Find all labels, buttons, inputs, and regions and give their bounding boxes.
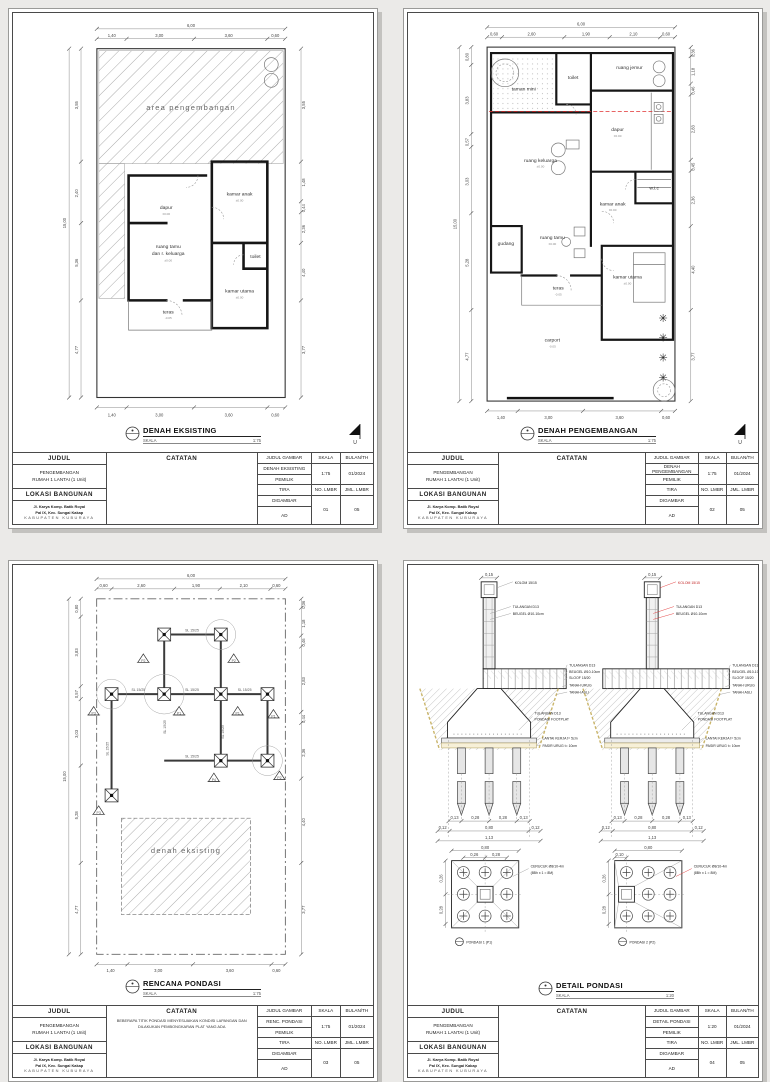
svg-text:1,13: 1,13 bbox=[485, 835, 494, 840]
svg-text:3,60: 3,60 bbox=[226, 968, 235, 973]
svg-text:3,77: 3,77 bbox=[691, 352, 696, 361]
no-lmbr-header: NO. LMBR bbox=[699, 485, 727, 496]
room-label: taman mini bbox=[512, 87, 536, 93]
skala-value: 1:20 bbox=[699, 1017, 727, 1038]
room-label: dapur bbox=[160, 205, 173, 211]
titleblock-info: JUDUL GAMBAR SKALA BULAN/TH DENAH EKSIST… bbox=[258, 453, 373, 524]
svg-text:0,28: 0,28 bbox=[602, 905, 607, 914]
svg-text:0,12: 0,12 bbox=[532, 825, 541, 830]
pemilik-header: PEMILIK bbox=[258, 475, 312, 485]
room-label: dan r. keluarga bbox=[152, 251, 185, 257]
titleblock: JUDUL PENGEMBANGANRUMAH 1 LANTAI (1 Unit… bbox=[13, 1005, 373, 1077]
bulan-header: BULAN/TH bbox=[727, 453, 758, 464]
judul-gambar-value: DENAH PENGEMBANGAN bbox=[646, 464, 699, 475]
svg-text:15,00: 15,00 bbox=[62, 217, 67, 228]
pemilik-value: TIRA bbox=[258, 485, 312, 496]
svg-text:3,00: 3,00 bbox=[544, 415, 553, 420]
svg-text:0,13: 0,13 bbox=[683, 815, 692, 820]
svg-text:0,60: 0,60 bbox=[271, 412, 280, 417]
svg-text:0,44: 0,44 bbox=[301, 714, 306, 723]
svg-text:0,28: 0,28 bbox=[662, 815, 671, 820]
elevation-label: ±0.00 bbox=[164, 259, 172, 263]
bulan-value: 01/2024 bbox=[341, 464, 373, 485]
svg-text:2,36: 2,36 bbox=[691, 196, 696, 205]
elevation-label: ±0.00 bbox=[549, 242, 557, 246]
svg-text:4,40: 4,40 bbox=[301, 268, 306, 277]
room-label: teras bbox=[163, 309, 175, 315]
project-address: Jl. Karya Komp. Batik RoyalPal IX, Kec. … bbox=[13, 501, 106, 524]
elevation-label: ±0.00 bbox=[609, 208, 617, 212]
svg-text:0,13: 0,13 bbox=[450, 815, 459, 820]
svg-text:TULANGAN D13: TULANGAN D13 bbox=[698, 711, 724, 715]
svg-text:SL 15/25: SL 15/25 bbox=[163, 720, 167, 734]
svg-text:0,12: 0,12 bbox=[439, 825, 448, 830]
scale-bubble-icon bbox=[538, 981, 553, 996]
svg-text:0,12: 0,12 bbox=[602, 825, 611, 830]
drawing-title: DENAH EKSISTING SKALA1:75 bbox=[125, 426, 261, 444]
skala-header: SKALA bbox=[699, 1006, 727, 1017]
room-label: ruang jemur bbox=[616, 65, 643, 71]
svg-text:PONDASI FOOTPLAT: PONDASI FOOTPLAT bbox=[698, 718, 733, 722]
skala-label: SKALA bbox=[143, 438, 157, 443]
svg-text:P1: P1 bbox=[236, 711, 240, 715]
jml-lmbr-value: 05 bbox=[341, 1049, 373, 1077]
elevation-label: ±0.00 bbox=[614, 134, 622, 138]
svg-text:SL 15/25: SL 15/25 bbox=[185, 688, 199, 692]
project-title: PENGEMBANGANRUMAH 1 LANTAI (1 Unit) bbox=[13, 465, 106, 489]
skala-label: SKALA bbox=[538, 438, 552, 443]
dim-bottom: 1,40 3,00 3,60 0,60 bbox=[95, 962, 288, 973]
svg-text:1,13: 1,13 bbox=[648, 835, 657, 840]
room-label: area pengembangan bbox=[146, 103, 236, 112]
svg-text:P1: P1 bbox=[177, 711, 181, 715]
svg-text:1,90: 1,90 bbox=[192, 583, 201, 588]
dim-top: 6,00 0,60 2,60 1,90 2,10 0,60 bbox=[485, 21, 677, 39]
svg-text:SLOOF 15/20: SLOOF 15/20 bbox=[569, 676, 590, 680]
bulan-header: BULAN/TH bbox=[341, 453, 373, 464]
drawing-title-text: DENAH EKSISTING bbox=[143, 426, 261, 437]
svg-text:0,60: 0,60 bbox=[662, 31, 671, 36]
drawing-title-text: DETAIL PONDASI bbox=[556, 981, 674, 992]
titleblock-project: JUDUL PENGEMBANGANRUMAH 1 LANTAI (1 Unit… bbox=[408, 453, 499, 524]
lokasi-header: LOKASI BANGUNAN bbox=[13, 1042, 106, 1054]
svg-text:2,10: 2,10 bbox=[240, 583, 249, 588]
svg-text:2,36: 2,36 bbox=[301, 748, 306, 757]
svg-text:2,40: 2,40 bbox=[74, 189, 79, 198]
catatan-text bbox=[499, 464, 645, 524]
svg-text:5,28: 5,28 bbox=[464, 258, 469, 267]
lantai-kerja bbox=[442, 738, 537, 743]
svg-text:3,00: 3,00 bbox=[154, 968, 163, 973]
skala-value: 1:75 bbox=[312, 1017, 341, 1038]
drawing-title-text: DENAH PENGEMBANGAN bbox=[538, 426, 656, 437]
no-lmbr-header: NO. LMBR bbox=[312, 1038, 341, 1049]
room-label: carport bbox=[545, 338, 561, 344]
svg-text:2,36: 2,36 bbox=[301, 224, 306, 233]
svg-text:0,80: 0,80 bbox=[644, 845, 653, 850]
svg-text:0,13: 0,13 bbox=[614, 815, 623, 820]
svg-text:BEUGEL Ø10-10cm: BEUGEL Ø10-10cm bbox=[513, 612, 544, 616]
dim-right: 0,36 1,18 0,46 2,83 0,45 2,36 4,40 3,77 bbox=[689, 45, 696, 403]
svg-text:0,46: 0,46 bbox=[691, 86, 696, 95]
svg-text:2,83: 2,83 bbox=[691, 124, 696, 133]
elevation-label: ±0.00 bbox=[236, 295, 244, 299]
judul-gambar-header: JUDUL GAMBAR bbox=[646, 453, 699, 464]
svg-text:0,80: 0,80 bbox=[481, 845, 490, 850]
area-label: denah eksisting bbox=[151, 846, 221, 855]
north-arrow: U bbox=[347, 422, 363, 446]
svg-text:0,36: 0,36 bbox=[691, 48, 696, 57]
svg-text:0,45: 0,45 bbox=[691, 162, 696, 171]
no-lmbr-value: 02 bbox=[699, 496, 727, 524]
drawing-title: DETAIL PONDASI SKALA1:20 bbox=[538, 981, 674, 999]
svg-text:0,15: 0,15 bbox=[648, 572, 657, 577]
dim-right: 0,36 1,18 0,46 2,83 0,44 2,36 4,40 3,77 bbox=[299, 597, 306, 957]
svg-text:0,28: 0,28 bbox=[492, 852, 501, 857]
room-label: teras bbox=[553, 285, 565, 291]
judul-gambar-value: RENC. PONDASI bbox=[258, 1017, 312, 1028]
svg-text:BEUGEL Ø10-10cm: BEUGEL Ø10-10cm bbox=[569, 670, 600, 674]
digambar-value: AD bbox=[258, 507, 312, 524]
titleblock-info: JUDUL GAMBAR SKALA BULAN/TH DENAH PENGEM… bbox=[646, 453, 758, 524]
pondasi-section-2: 0,15 0,13 0,28 0,28 bbox=[583, 572, 758, 843]
digambar-value: AD bbox=[258, 1060, 312, 1077]
rencana-pondasi-drawing: 6,00 0,60 2,60 1,90 2,10 0,60 SL 15/25 S… bbox=[13, 565, 373, 1005]
svg-text:(8Bh x 1 = 8M): (8Bh x 1 = 8M) bbox=[531, 871, 554, 875]
svg-text:SL 15/25: SL 15/25 bbox=[238, 688, 252, 692]
sheet-rencana-pondasi: 6,00 0,60 2,60 1,90 2,10 0,60 SL 15/25 S… bbox=[8, 560, 378, 1082]
elevation-label: -0.05 bbox=[555, 292, 562, 296]
elevation-label: ±0.00 bbox=[537, 165, 545, 169]
svg-text:0,80: 0,80 bbox=[74, 604, 79, 613]
svg-text:1,40: 1,40 bbox=[108, 412, 117, 417]
titleblock-project: JUDUL PENGEMBANGANRUMAH 1 LANTAI (1 Unit… bbox=[13, 453, 107, 524]
ghost-circles bbox=[97, 620, 283, 776]
elevation-label: -0.05 bbox=[549, 345, 556, 349]
svg-text:BEUGEL Ø10-10cm: BEUGEL Ø10-10cm bbox=[732, 670, 758, 674]
project-title: PENGEMBANGANRUMAH 1 LANTAI (1 Unit) bbox=[408, 1018, 498, 1042]
svg-text:PONDASI FOOTPLAT: PONDASI FOOTPLAT bbox=[535, 718, 570, 722]
tree-icon: ✳ bbox=[659, 372, 668, 384]
dim-left: 0,80 3,83 0,57 3,03 5,28 4,77 15,00 bbox=[452, 45, 473, 403]
elevation-label: ±0.00 bbox=[624, 281, 632, 285]
catatan-header: CATATAN bbox=[107, 453, 257, 464]
sheet-detail-pondasi: 0,15 0,13 0,28 0,28 bbox=[403, 560, 763, 1082]
svg-text:SL 15/25: SL 15/25 bbox=[106, 742, 110, 756]
svg-text:TANAH ASLI: TANAH ASLI bbox=[732, 691, 752, 695]
titleblock: JUDUL PENGEMBANGANRUMAH 1 LANTAI (1 Unit… bbox=[13, 452, 373, 524]
pondasi-plan-2: 0,80 0,10 0,26 0,28 CERUCUK Ø8/10-4m (8B… bbox=[602, 845, 728, 946]
drawing-title-text: RENCANA PONDASI bbox=[143, 979, 261, 990]
lokasi-header: LOKASI BANGUNAN bbox=[408, 1042, 498, 1054]
room-label: kamar utama bbox=[225, 288, 254, 294]
svg-text:0,60: 0,60 bbox=[490, 31, 499, 36]
lantai-kerja bbox=[605, 738, 700, 743]
sheet-frame: 6,00 1,40 3,00 3,60 0,60 area pengembang… bbox=[12, 12, 374, 525]
denah-pengembangan-drawing: 6,00 0,60 2,60 1,90 2,10 0,60 taman mini… bbox=[408, 13, 758, 452]
dim-bottom: 1,40 3,00 3,60 0,60 bbox=[485, 409, 677, 420]
svg-text:5,28: 5,28 bbox=[74, 811, 79, 820]
svg-text:CERUCUK Ø8/10-4m: CERUCUK Ø8/10-4m bbox=[531, 865, 565, 869]
svg-text:0,60: 0,60 bbox=[272, 583, 281, 588]
svg-text:0,80: 0,80 bbox=[485, 825, 494, 830]
titleblock-info: JUDUL GAMBAR SKALA BULAN/TH RENC. PONDAS… bbox=[258, 1006, 373, 1077]
project-address: Jl. Karya Komp. Batik RoyalPal IX, Kec. … bbox=[13, 1054, 106, 1077]
no-lmbr-header: NO. LMBR bbox=[312, 485, 341, 496]
drawing-title: RENCANA PONDASI SKALA1:75 bbox=[125, 979, 261, 997]
scale-bubble-icon bbox=[520, 426, 535, 441]
svg-text:0,60: 0,60 bbox=[271, 33, 280, 38]
elevation-label: ±0.00 bbox=[162, 212, 170, 216]
dim-bottom: 1,40 3,00 3,60 0,60 bbox=[95, 405, 287, 417]
bulan-value: 01/2024 bbox=[727, 1017, 758, 1038]
svg-text:P2: P2 bbox=[232, 659, 236, 663]
svg-text:TULANGAN D13: TULANGAN D13 bbox=[513, 605, 539, 609]
jml-lmbr-header: JML. LMBR bbox=[341, 485, 373, 496]
pondasi-section-1: 0,15 0,13 0,28 0,28 bbox=[420, 572, 600, 843]
svg-text:3,00: 3,00 bbox=[155, 33, 164, 38]
pemilik-value: TIRA bbox=[258, 1038, 312, 1049]
pasir-urug bbox=[605, 743, 700, 748]
svg-text:0,13: 0,13 bbox=[520, 815, 529, 820]
room-label: ruang tamu bbox=[540, 235, 565, 241]
svg-text:0,60: 0,60 bbox=[100, 583, 109, 588]
svg-text:0,60: 0,60 bbox=[272, 968, 281, 973]
pasir-urug bbox=[442, 743, 537, 748]
room-label: w.i.c bbox=[649, 185, 659, 191]
svg-text:TULANGAN D13: TULANGAN D13 bbox=[569, 663, 595, 667]
drawing-title: DENAH PENGEMBANGAN SKALA1:75 bbox=[520, 426, 656, 444]
svg-text:15,00: 15,00 bbox=[62, 771, 67, 782]
pondasi-plan-1: 0,80 0,26 0,28 0,26 0,28 CERUCUK Ø8/10-4… bbox=[439, 845, 565, 946]
digambar-header: DIGAMBAR bbox=[646, 1049, 699, 1060]
tree-icon: ✳ bbox=[659, 333, 668, 345]
north-label: U bbox=[353, 440, 357, 446]
svg-text:3,55: 3,55 bbox=[301, 100, 306, 109]
project-address: Jl. Karya Komp. Batik RoyalPal IX, Kec. … bbox=[408, 501, 498, 524]
svg-text:0,26: 0,26 bbox=[439, 874, 444, 883]
svg-text:BEUGEL Ø10-10cm: BEUGEL Ø10-10cm bbox=[676, 612, 707, 616]
dim-left: 0,80 3,83 0,57 3,03 5,28 4,77 15,00 bbox=[62, 597, 83, 957]
svg-text:KOLOM 15/15: KOLOM 15/15 bbox=[678, 581, 700, 585]
svg-text:1,18: 1,18 bbox=[691, 67, 696, 76]
tree-icon: ✳ bbox=[659, 313, 668, 325]
catatan-header: CATATAN bbox=[499, 453, 645, 464]
titleblock-project: JUDUL PENGEMBANGANRUMAH 1 LANTAI (1 Unit… bbox=[408, 1006, 499, 1077]
skala-value: 1:75 bbox=[253, 438, 261, 443]
room-label: toilet bbox=[568, 75, 579, 81]
svg-text:0,28: 0,28 bbox=[634, 815, 643, 820]
svg-text:TULANGAN D13: TULANGAN D13 bbox=[535, 711, 561, 715]
svg-text:4,77: 4,77 bbox=[74, 905, 79, 914]
judul-header: JUDUL bbox=[408, 1006, 498, 1018]
digambar-value: AD bbox=[646, 507, 699, 524]
bulan-value: 01/2024 bbox=[341, 1017, 373, 1038]
svg-text:1,18: 1,18 bbox=[301, 619, 306, 628]
room-label: dapur bbox=[611, 127, 624, 133]
jml-lmbr-value: 05 bbox=[727, 496, 758, 524]
skala-header: SKALA bbox=[699, 453, 727, 464]
svg-text:P3: P3 bbox=[97, 811, 101, 815]
svg-text:3,83: 3,83 bbox=[74, 648, 79, 657]
judul-gambar-header: JUDUL GAMBAR bbox=[646, 1006, 699, 1017]
svg-text:PASIR URUG t= 10cm: PASIR URUG t= 10cm bbox=[706, 744, 741, 748]
jml-lmbr-header: JML. LMBR bbox=[727, 1038, 758, 1049]
svg-text:P3: P3 bbox=[92, 711, 96, 715]
plan-label: PONDASI 2 (P2) bbox=[619, 938, 656, 946]
titleblock-notes: CATATAN BEBERAPA TITIK PONDASI MENYESUAI… bbox=[107, 1006, 258, 1077]
svg-text:0,28: 0,28 bbox=[471, 815, 480, 820]
denah-eksisting-drawing: 6,00 1,40 3,00 3,60 0,60 area pengembang… bbox=[13, 13, 373, 452]
catatan-text: BEBERAPA TITIK PONDASI MENYESUAIKAN KOND… bbox=[107, 1017, 257, 1077]
svg-text:0,80: 0,80 bbox=[464, 52, 469, 61]
denah-eksisting-hatch bbox=[121, 818, 250, 914]
judul-header: JUDUL bbox=[13, 1006, 106, 1018]
catatan-text bbox=[107, 464, 257, 524]
bulan-value: 01/2024 bbox=[727, 464, 758, 485]
svg-text:2,10: 2,10 bbox=[629, 31, 638, 36]
pemilik-header: PEMILIK bbox=[646, 475, 699, 485]
skala-value: 1:75 bbox=[253, 991, 261, 996]
svg-text:0,26: 0,26 bbox=[602, 874, 607, 883]
room-label: kamar utama bbox=[613, 274, 642, 280]
titleblock-info: JUDUL GAMBAR SKALA BULAN/TH DETAIL PONDA… bbox=[646, 1006, 758, 1077]
skala-label: SKALA bbox=[143, 991, 157, 996]
bulan-header: BULAN/TH bbox=[341, 1006, 373, 1017]
taman-floor bbox=[493, 55, 554, 110]
skala-value: 1:20 bbox=[666, 993, 674, 998]
svg-text:3,60: 3,60 bbox=[225, 33, 234, 38]
svg-text:2,83: 2,83 bbox=[301, 676, 306, 685]
project-address: Jl. Karya Komp. Batik RoyalPal IX, Kec. … bbox=[408, 1054, 498, 1077]
plan-label: PONDASI 1 (P1) bbox=[455, 938, 492, 946]
dim-right: 3,55 1,48 0,44 2,36 4,40 3,77 bbox=[299, 47, 306, 400]
project-title: PENGEMBANGANRUMAH 1 LANTAI (1 Unit) bbox=[408, 465, 498, 489]
titleblock: JUDUL PENGEMBANGANRUMAH 1 LANTAI (1 Unit… bbox=[408, 452, 758, 524]
room-label: ruang tamu bbox=[156, 244, 181, 250]
svg-text:0,46: 0,46 bbox=[301, 638, 306, 647]
jml-lmbr-value: 05 bbox=[727, 1049, 758, 1077]
scale-bubble-icon bbox=[125, 979, 140, 994]
lokasi-header: LOKASI BANGUNAN bbox=[408, 489, 498, 501]
scale-bubble-icon bbox=[125, 426, 140, 441]
catatan-text bbox=[499, 1017, 645, 1077]
digambar-header: DIGAMBAR bbox=[646, 496, 699, 507]
svg-text:KOLOM 15/15: KOLOM 15/15 bbox=[515, 581, 537, 585]
north-arrow-icon bbox=[732, 422, 748, 440]
svg-text:LANTAI KERJA t= 5cm: LANTAI KERJA t= 5cm bbox=[706, 737, 741, 741]
digambar-header: DIGAMBAR bbox=[258, 496, 312, 507]
pemilik-header: PEMILIK bbox=[258, 1028, 312, 1038]
svg-text:P2: P2 bbox=[277, 776, 281, 780]
pemilik-value: TIRA bbox=[646, 1038, 699, 1049]
project-title: PENGEMBANGANRUMAH 1 LANTAI (1 Unit) bbox=[13, 1018, 106, 1042]
judul-header: JUDUL bbox=[408, 453, 498, 465]
no-lmbr-header: NO. LMBR bbox=[699, 1038, 727, 1049]
svg-text:1,40: 1,40 bbox=[107, 968, 116, 973]
skala-label: SKALA bbox=[556, 993, 570, 998]
digambar-header: DIGAMBAR bbox=[258, 1049, 312, 1060]
skala-value: 1:75 bbox=[312, 464, 341, 485]
skala-value: 1:75 bbox=[699, 464, 727, 485]
room-label: toilet bbox=[250, 254, 261, 260]
svg-text:(8Bh x 1 = 8M): (8Bh x 1 = 8M) bbox=[694, 871, 717, 875]
svg-text:3,60: 3,60 bbox=[225, 412, 234, 417]
lokasi-header: LOKASI BANGUNAN bbox=[13, 489, 106, 501]
skala-header: SKALA bbox=[312, 453, 341, 464]
svg-text:3,03: 3,03 bbox=[74, 729, 79, 738]
svg-text:0,28: 0,28 bbox=[439, 905, 444, 914]
north-arrow-icon bbox=[347, 422, 363, 440]
svg-text:6,00: 6,00 bbox=[187, 23, 196, 28]
judul-gambar-header: JUDUL GAMBAR bbox=[258, 1006, 312, 1017]
pemilik-header: PEMILIK bbox=[646, 1028, 699, 1038]
svg-text:0,57: 0,57 bbox=[74, 689, 79, 698]
titleblock: JUDUL PENGEMBANGANRUMAH 1 LANTAI (1 Unit… bbox=[408, 1005, 758, 1077]
room-label: ruang keluarga bbox=[524, 158, 557, 164]
svg-text:4,40: 4,40 bbox=[691, 265, 696, 274]
svg-text:P4: P4 bbox=[212, 778, 216, 782]
svg-text:0,26: 0,26 bbox=[470, 852, 479, 857]
svg-text:0,28: 0,28 bbox=[499, 815, 508, 820]
svg-text:0,36: 0,36 bbox=[301, 600, 306, 609]
svg-text:1,40: 1,40 bbox=[108, 33, 117, 38]
titleblock-notes: CATATAN bbox=[107, 453, 258, 524]
svg-text:0,57: 0,57 bbox=[464, 137, 469, 146]
svg-text:2,60: 2,60 bbox=[137, 583, 146, 588]
catatan-header: CATATAN bbox=[499, 1006, 645, 1017]
footings bbox=[105, 628, 274, 802]
svg-text:3,00: 3,00 bbox=[155, 412, 164, 417]
svg-text:1,90: 1,90 bbox=[582, 31, 591, 36]
dim-top: 6,00 1,40 3,00 3,60 0,60 bbox=[95, 23, 287, 41]
sheet-frame: 0,15 0,13 0,28 0,28 bbox=[407, 564, 759, 1078]
elevation-label: -0.05 bbox=[165, 316, 172, 320]
jml-lmbr-header: JML. LMBR bbox=[341, 1038, 373, 1049]
svg-text:3,03: 3,03 bbox=[464, 177, 469, 186]
north-label: U bbox=[738, 440, 742, 446]
pemilik-value: TIRA bbox=[646, 485, 699, 496]
skala-header: SKALA bbox=[312, 1006, 341, 1017]
svg-text:4,77: 4,77 bbox=[464, 352, 469, 361]
svg-text:0,80: 0,80 bbox=[648, 825, 657, 830]
svg-text:0,44: 0,44 bbox=[301, 203, 306, 212]
jml-lmbr-header: JML. LMBR bbox=[727, 485, 758, 496]
judul-gambar-value: DENAH EKSISTING bbox=[258, 464, 312, 475]
titleblock-notes: CATATAN bbox=[499, 1006, 646, 1077]
svg-text:TANAH URUG: TANAH URUG bbox=[732, 684, 755, 688]
svg-text:SL 15/25: SL 15/25 bbox=[185, 755, 199, 759]
elevation-label: ±0.00 bbox=[236, 198, 244, 202]
svg-text:PONDASI 2 (P2): PONDASI 2 (P2) bbox=[629, 941, 655, 945]
svg-text:TULANGAN D13: TULANGAN D13 bbox=[732, 663, 758, 667]
svg-text:PONDASI 1 (P1): PONDASI 1 (P1) bbox=[466, 941, 492, 945]
svg-text:3,77: 3,77 bbox=[301, 905, 306, 914]
svg-text:6,00: 6,00 bbox=[187, 573, 196, 578]
dim-left: 3,55 2,40 5,36 4,77 15,00 bbox=[62, 47, 83, 400]
room-label: gudang bbox=[498, 241, 515, 247]
svg-text:SL 15/25: SL 15/25 bbox=[131, 688, 145, 692]
svg-text:P2: P2 bbox=[141, 659, 145, 663]
titleblock-project: JUDUL PENGEMBANGANRUMAH 1 LANTAI (1 Unit… bbox=[13, 1006, 107, 1077]
judul-header: JUDUL bbox=[13, 453, 106, 465]
judul-gambar-value: DETAIL PONDASI bbox=[646, 1017, 699, 1028]
sheet-denah-eksisting: 6,00 1,40 3,00 3,60 0,60 area pengembang… bbox=[8, 8, 378, 529]
svg-text:1,40: 1,40 bbox=[497, 415, 506, 420]
no-lmbr-value: 01 bbox=[312, 496, 341, 524]
room-label: kamar anak bbox=[227, 191, 253, 197]
digambar-value: AD bbox=[646, 1060, 699, 1077]
